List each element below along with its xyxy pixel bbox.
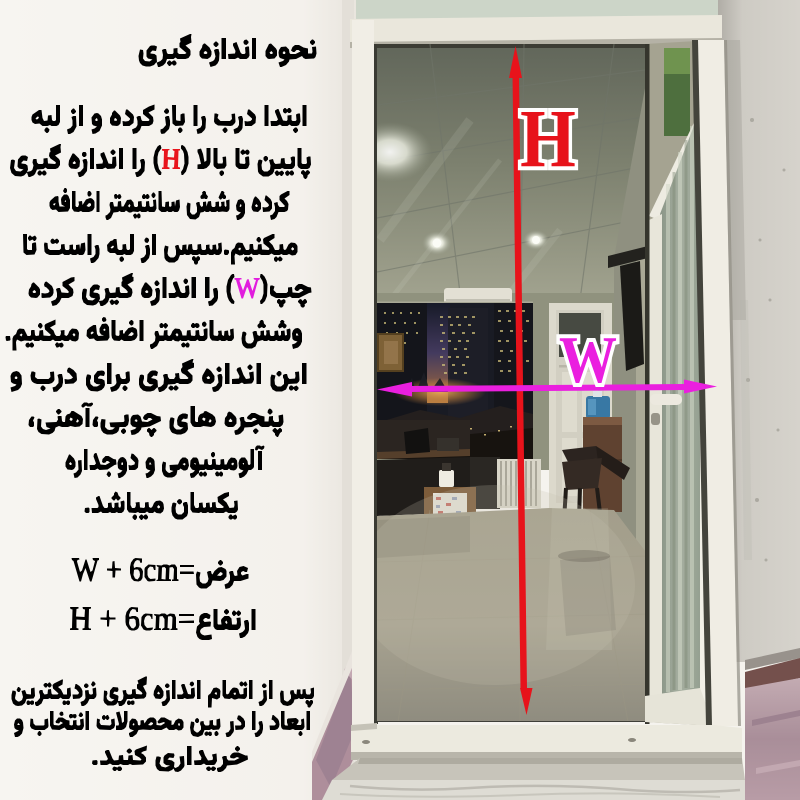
svg-text:H: H <box>520 92 576 184</box>
svg-text:W: W <box>559 322 617 397</box>
